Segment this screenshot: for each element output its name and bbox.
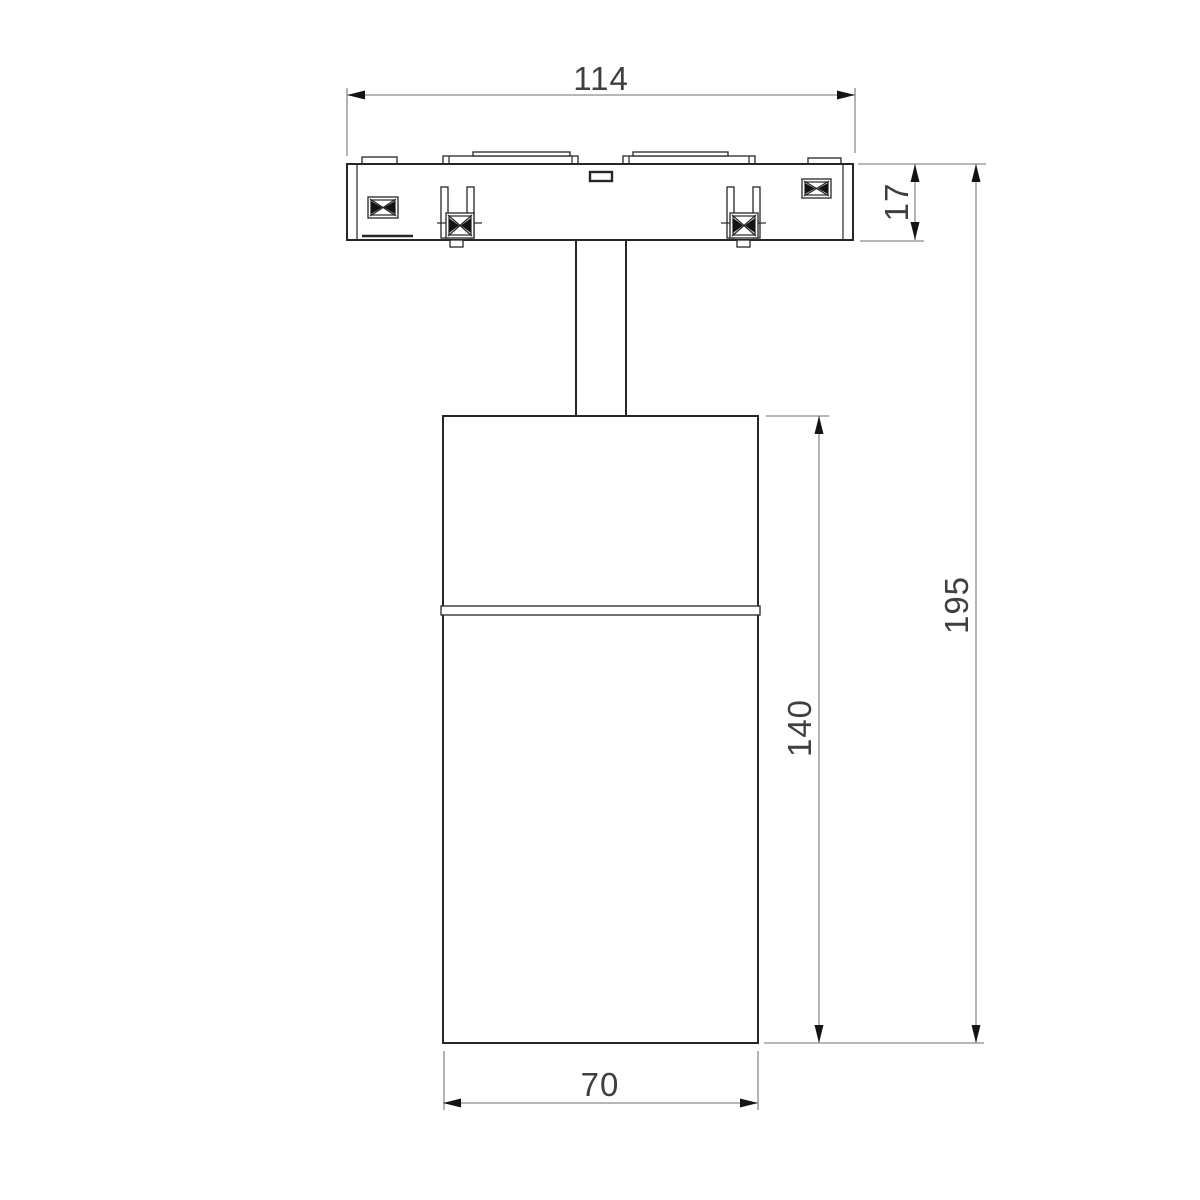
arrowhead [972, 1025, 981, 1043]
dimension-track-width: 114 [347, 60, 855, 156]
dimension-label-adapter-height: 17 [878, 183, 915, 222]
arrowhead [972, 164, 981, 182]
arrowhead [815, 1025, 824, 1043]
adapter-tab-wide-right [623, 152, 755, 164]
dimension-adapter-height: 17 [858, 164, 986, 241]
dimension-overall-height: 195 [938, 164, 981, 1043]
arrowhead [347, 91, 365, 100]
arrowhead [740, 1099, 758, 1108]
clip-right-foot [737, 240, 750, 247]
adapter-body [347, 164, 853, 240]
lamp-cylinder [443, 416, 758, 1043]
dimension-label-body-height: 140 [781, 699, 818, 757]
arrowhead [815, 416, 824, 434]
adapter-tab-left [362, 157, 397, 164]
screw-left-icon [368, 197, 398, 218]
dimension-label-track-width: 114 [573, 60, 629, 97]
dimension-label-overall-height: 195 [938, 576, 975, 634]
screw-right-icon [802, 179, 831, 198]
lamp-body [441, 416, 760, 1043]
dimension-label-body-width: 70 [581, 1066, 620, 1103]
arrowhead [837, 91, 855, 100]
arrowhead [443, 1099, 461, 1108]
track-adapter [347, 152, 853, 247]
stem [576, 241, 626, 416]
clip-right-screw-icon [730, 213, 758, 238]
drawing-canvas: 114 17 195 140 70 [0, 0, 1200, 1200]
dimension-body-height: 140 [764, 416, 984, 1043]
clip-left-screw-icon [446, 213, 474, 238]
dimension-body-width: 70 [443, 1051, 758, 1110]
technical-drawing: 114 17 195 140 70 [0, 0, 1200, 1200]
arrowhead [911, 164, 920, 182]
adapter-tab-wide-left [443, 152, 578, 164]
arrowhead [911, 222, 920, 240]
lamp-seam-ring [441, 606, 760, 615]
clip-left-foot [450, 240, 463, 247]
